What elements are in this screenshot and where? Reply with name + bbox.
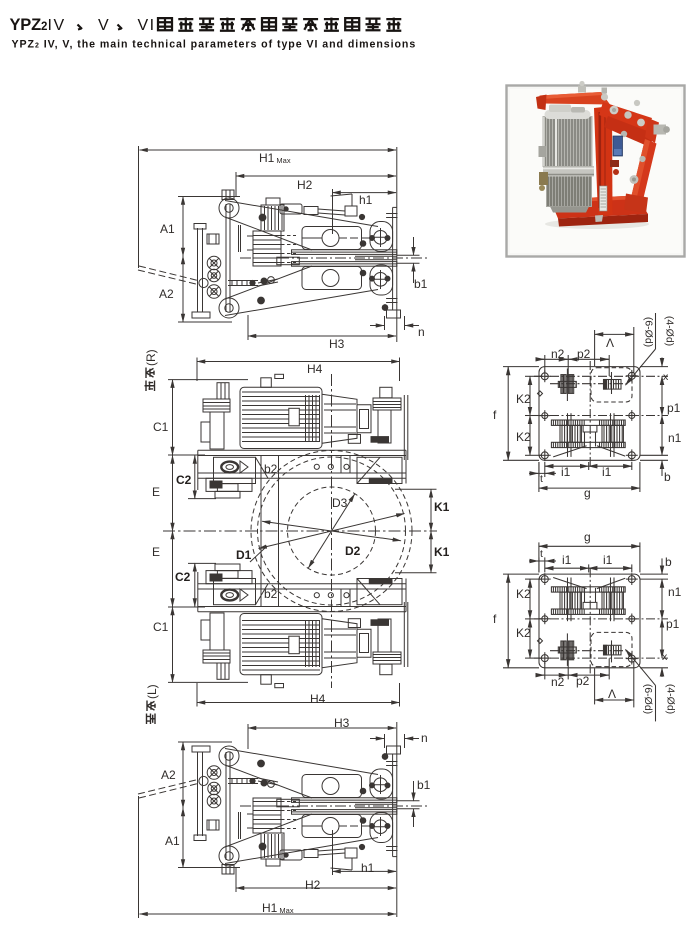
svg-text:n2: n2 <box>551 675 565 689</box>
svg-text:D2: D2 <box>345 544 361 558</box>
svg-text:g: g <box>584 530 591 544</box>
svg-text:IV: IV <box>48 17 66 34</box>
svg-text:C1: C1 <box>153 420 169 434</box>
svg-text:b2: b2 <box>264 587 278 601</box>
svg-text:i1: i1 <box>562 553 572 567</box>
svg-text:b: b <box>664 470 671 484</box>
svg-text:K1: K1 <box>434 545 450 559</box>
svg-text:YPZ2 IV, V, the main technical: YPZ2 IV, V, the main technical parameter… <box>12 39 417 51</box>
svg-text:n1: n1 <box>668 585 682 599</box>
svg-text:(6-Ød): (6-Ød) <box>643 317 655 347</box>
svg-text:H4: H4 <box>310 692 326 706</box>
svg-text:x: x <box>663 371 669 383</box>
svg-text:(6-Ød): (6-Ød) <box>642 684 654 714</box>
svg-text:A2: A2 <box>161 768 176 782</box>
svg-text:E: E <box>152 545 160 559</box>
svg-text:A2: A2 <box>159 287 174 301</box>
svg-text:H2: H2 <box>297 178 313 192</box>
svg-text:i1: i1 <box>602 465 612 479</box>
svg-text:H2: H2 <box>305 878 321 892</box>
svg-text:A1: A1 <box>165 834 180 848</box>
svg-text:p1: p1 <box>666 617 680 631</box>
svg-text:p2: p2 <box>577 347 591 361</box>
svg-text:t: t <box>540 473 543 485</box>
svg-text:i1: i1 <box>603 553 613 567</box>
svg-text:p2: p2 <box>576 674 590 688</box>
svg-text:b1: b1 <box>417 778 431 792</box>
svg-text:(L): (L) <box>145 684 159 699</box>
svg-text:n2: n2 <box>551 347 565 361</box>
svg-text:H3: H3 <box>334 716 350 730</box>
svg-text:b2: b2 <box>264 462 278 476</box>
svg-text:b1: b1 <box>414 277 428 291</box>
svg-text:H3: H3 <box>329 337 345 351</box>
svg-text:x: x <box>662 651 668 663</box>
svg-text:V: V <box>98 17 109 34</box>
svg-text:H4: H4 <box>307 362 323 376</box>
svg-text:(R): (R) <box>144 349 158 366</box>
svg-text:K2: K2 <box>516 392 531 406</box>
svg-text:i1: i1 <box>561 465 571 479</box>
svg-text:h1: h1 <box>359 193 373 207</box>
svg-text:n1: n1 <box>668 431 682 445</box>
svg-text:A1: A1 <box>160 222 175 236</box>
svg-text:K1: K1 <box>434 500 450 514</box>
svg-text:n: n <box>421 731 428 745</box>
svg-text:K2: K2 <box>516 587 531 601</box>
svg-text:Λ: Λ <box>608 687 616 701</box>
svg-text:n: n <box>418 325 425 339</box>
svg-text:K2: K2 <box>516 430 531 444</box>
svg-text:D1: D1 <box>236 548 252 562</box>
svg-text:D3: D3 <box>332 496 348 510</box>
svg-text:p1: p1 <box>667 401 681 415</box>
svg-text:g: g <box>584 486 591 500</box>
svg-text:K2: K2 <box>516 626 531 640</box>
svg-text:b: b <box>665 555 672 569</box>
svg-text:(4-Ød): (4-Ød) <box>664 316 676 346</box>
svg-text:VI: VI <box>138 17 156 34</box>
svg-text:t: t <box>540 548 543 560</box>
svg-text:h1: h1 <box>361 861 375 875</box>
svg-text:E: E <box>152 485 160 499</box>
svg-text:C2: C2 <box>175 570 191 584</box>
svg-text:C1: C1 <box>153 620 169 634</box>
svg-text:(4-Ød): (4-Ød) <box>665 684 677 714</box>
svg-text:Λ: Λ <box>606 336 614 350</box>
svg-text:C2: C2 <box>176 473 192 487</box>
